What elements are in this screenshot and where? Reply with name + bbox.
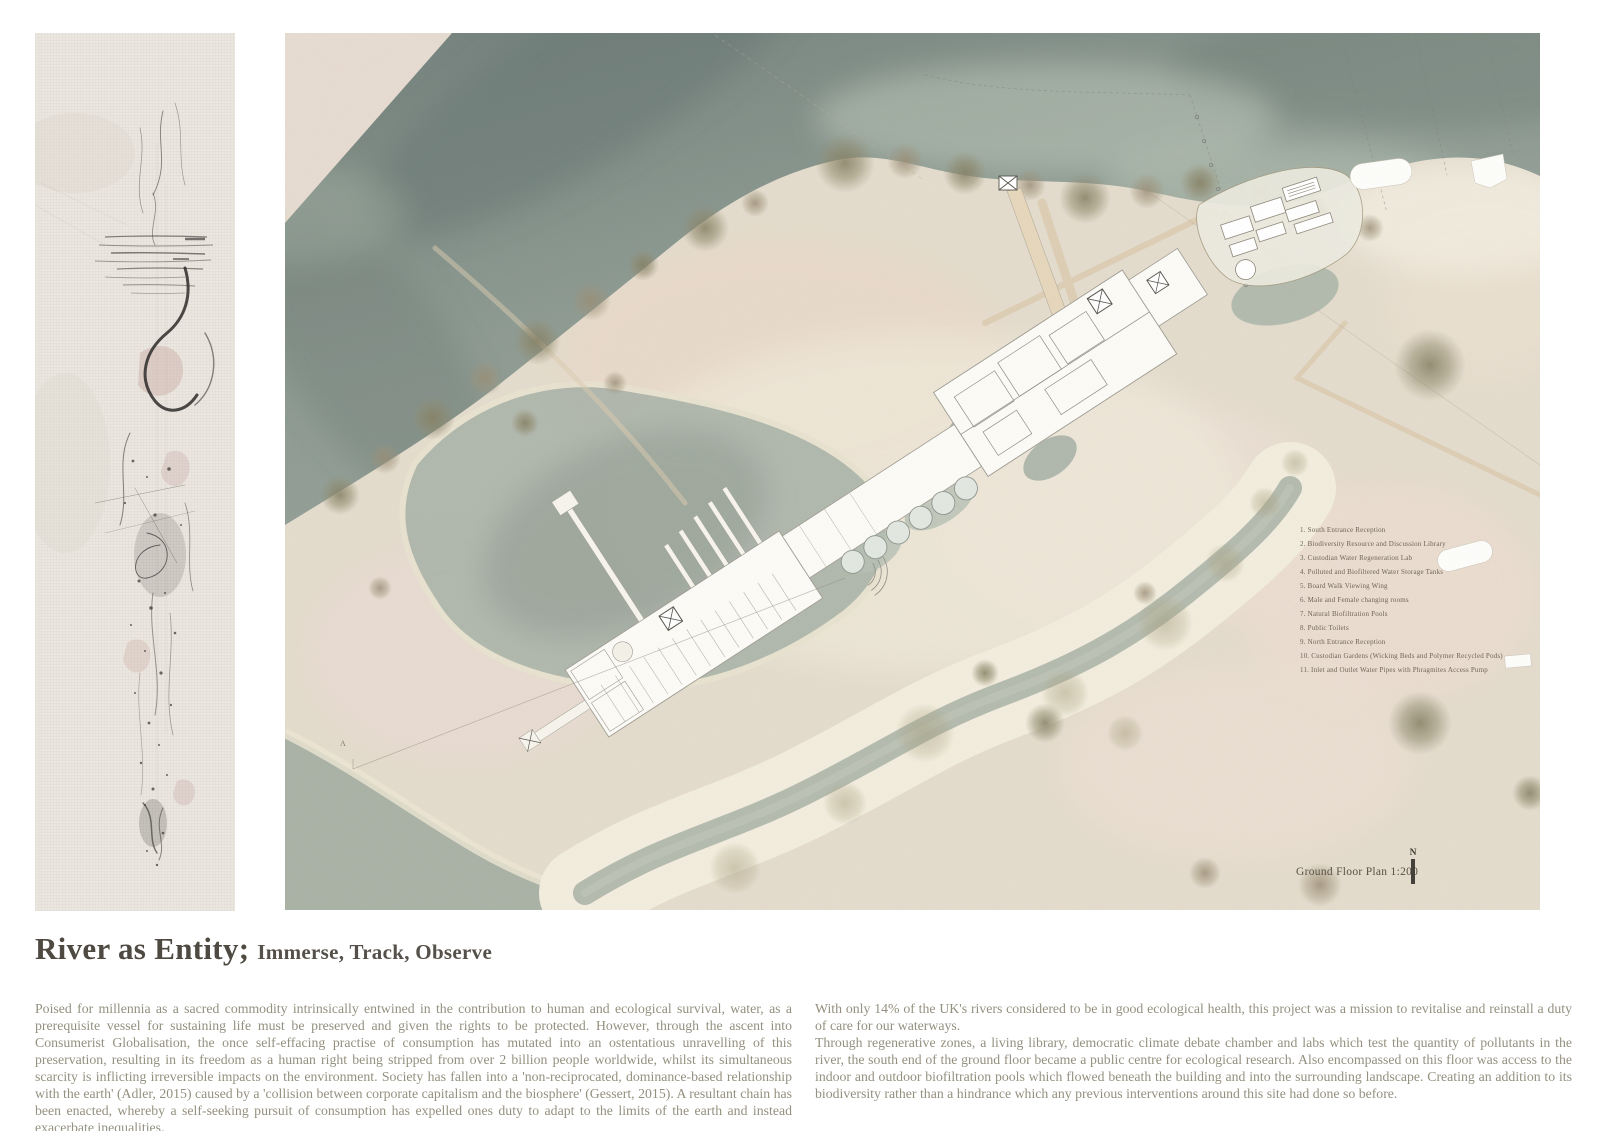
legend-item: 5. Board Walk Viewing Wing xyxy=(1300,579,1530,593)
concept-artwork-panel xyxy=(35,33,235,911)
body-right-paragraph-1: With only 14% of the UK's rivers conside… xyxy=(815,1000,1572,1034)
site-plan-panel: 1. South Entrance Reception2. Biodiversi… xyxy=(285,33,1540,910)
body-text-left: Poised for millennia as a sacred commodi… xyxy=(35,1000,792,1131)
north-arrow-bar xyxy=(1411,859,1415,884)
legend-item: 8. Public Toilets xyxy=(1300,621,1530,635)
site-plan-graphic xyxy=(285,33,1540,910)
legend-item: 2. Biodiversity Resource and Discussion … xyxy=(1300,537,1530,551)
page-title: River as Entity;Immerse, Track, Observe xyxy=(35,930,1035,967)
body-text-right: With only 14% of the UK's rivers conside… xyxy=(815,1000,1572,1102)
legend-item: 4. Polluted and Biofiltered Water Storag… xyxy=(1300,565,1530,579)
legend-item: 7. Natural Biofiltration Pools xyxy=(1300,607,1530,621)
section-marker-a: A xyxy=(340,739,346,748)
legend-item: 10. Custodian Gardens (Wicking Beds and … xyxy=(1300,649,1530,663)
legend-item: 11. Inlet and Outlet Water Pipes with Ph… xyxy=(1300,663,1530,677)
plan-legend: 1. South Entrance Reception2. Biodiversi… xyxy=(1300,523,1530,677)
legend-item: 6. Male and Female changing rooms xyxy=(1300,593,1530,607)
legend-item: 1. South Entrance Reception xyxy=(1300,523,1530,537)
north-label: N xyxy=(1405,848,1421,858)
north-arrow: N xyxy=(1405,848,1421,884)
plan-title-label: Ground Floor Plan 1:200 xyxy=(1296,866,1418,878)
presentation-board: 1. South Entrance Reception2. Biodiversi… xyxy=(0,0,1600,1131)
title-subtitle: Immerse, Track, Observe xyxy=(257,940,492,964)
abstract-ink-drawing xyxy=(35,33,235,911)
title-main: River as Entity; xyxy=(35,931,249,966)
body-right-paragraph-2: Through regenerative zones, a living lib… xyxy=(815,1034,1572,1102)
title-block: River as Entity;Immerse, Track, Observe xyxy=(35,930,1035,967)
legend-item: 3. Custodian Water Regeneration Lab xyxy=(1300,551,1530,565)
legend-item: 9. North Entrance Reception xyxy=(1300,635,1530,649)
